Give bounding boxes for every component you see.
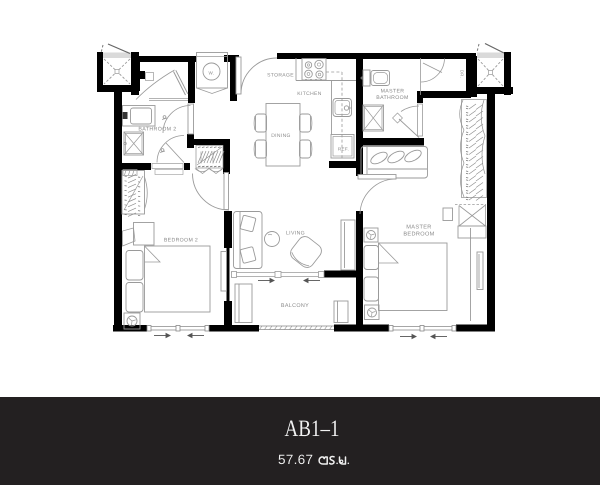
svg-text:BEDROOM 2: BEDROOM 2 <box>164 238 198 244</box>
svg-text:BEDROOM: BEDROOM <box>403 232 434 238</box>
svg-text:LIVING: LIVING <box>286 231 305 237</box>
svg-text:BATHROOM 2: BATHROOM 2 <box>138 127 176 133</box>
svg-text:BALCONY: BALCONY <box>281 303 309 309</box>
svg-text:STORAGE: STORAGE <box>267 73 294 79</box>
svg-text:DR.: DR. <box>460 70 465 78</box>
svg-text:DINING: DINING <box>271 133 291 139</box>
svg-text:REF.: REF. <box>338 147 349 152</box>
svg-text:MASTER: MASTER <box>406 225 431 231</box>
svg-text:BATHROOM: BATHROOM <box>376 95 408 101</box>
svg-text:W.: W. <box>209 71 215 76</box>
svg-text:KITCHEN: KITCHEN <box>297 91 321 97</box>
svg-text:MASTER: MASTER <box>381 89 405 95</box>
